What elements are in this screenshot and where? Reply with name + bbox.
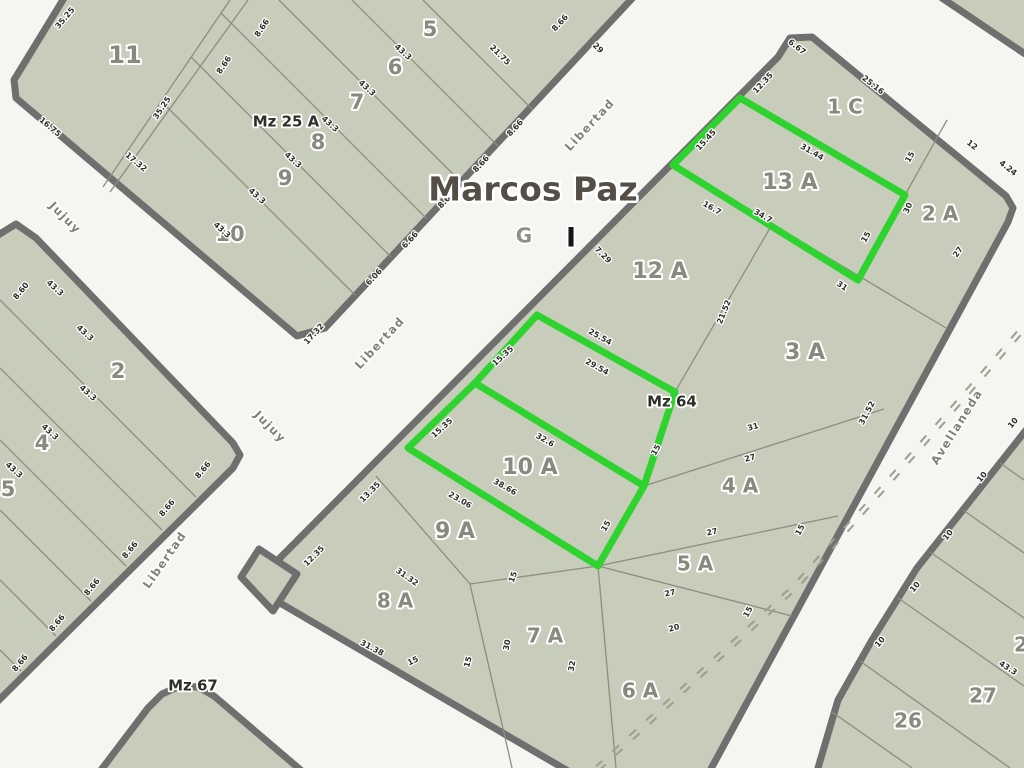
lot-number-label: 1 C — [827, 95, 863, 119]
cadastral-map: 1156789102451 C13 A2 A12 A3 A10 A4 A9 A5… — [0, 0, 1024, 768]
lot-number-label: 2 A — [922, 202, 959, 226]
lot-number-label: 8 — [311, 130, 326, 154]
lot-number-label: 2 — [111, 359, 126, 383]
overlay-letter-g: G — [516, 224, 532, 248]
lot-number-label: 4 A — [722, 474, 759, 498]
lot-number-label: 13 A — [762, 170, 817, 195]
lot-number-label: 7 — [350, 90, 365, 114]
lot-number-label: 3 A — [785, 340, 825, 365]
cadastral-map-canvas: 1156789102451 C13 A2 A12 A3 A10 A4 A9 A5… — [0, 0, 1024, 768]
lot-number-label: 10 A — [502, 455, 557, 480]
lot-number-label: 9 A — [435, 519, 475, 544]
lot-number-label: 6 A — [622, 679, 659, 703]
locality-title: Marcos Paz — [428, 170, 638, 209]
lot-number-label: 5 A — [677, 552, 714, 576]
lot-number-label: 9 — [278, 166, 293, 190]
lot-number-label: 8 A — [377, 589, 414, 613]
lot-number-label: 5 — [1, 477, 16, 501]
manzana-label: Mz 64 — [647, 393, 697, 411]
lot-number-label: 12 A — [632, 259, 687, 284]
manzana-label: Mz 67 — [168, 677, 218, 695]
lot-number-label: 26 — [894, 709, 922, 733]
overlay-letter-i: I — [566, 223, 576, 254]
lot-number-label: 6 — [388, 55, 403, 79]
measurement-label: 32 — [567, 660, 578, 673]
lot-number-label: 5 — [423, 17, 438, 41]
lot-number-label: 27 — [969, 684, 997, 708]
manzana-label: Mz 25 A — [253, 113, 320, 131]
lot-number-label: 7 A — [527, 624, 564, 648]
lot-number-label: 11 — [108, 41, 141, 69]
lot-number-label: 2 — [1014, 633, 1024, 657]
